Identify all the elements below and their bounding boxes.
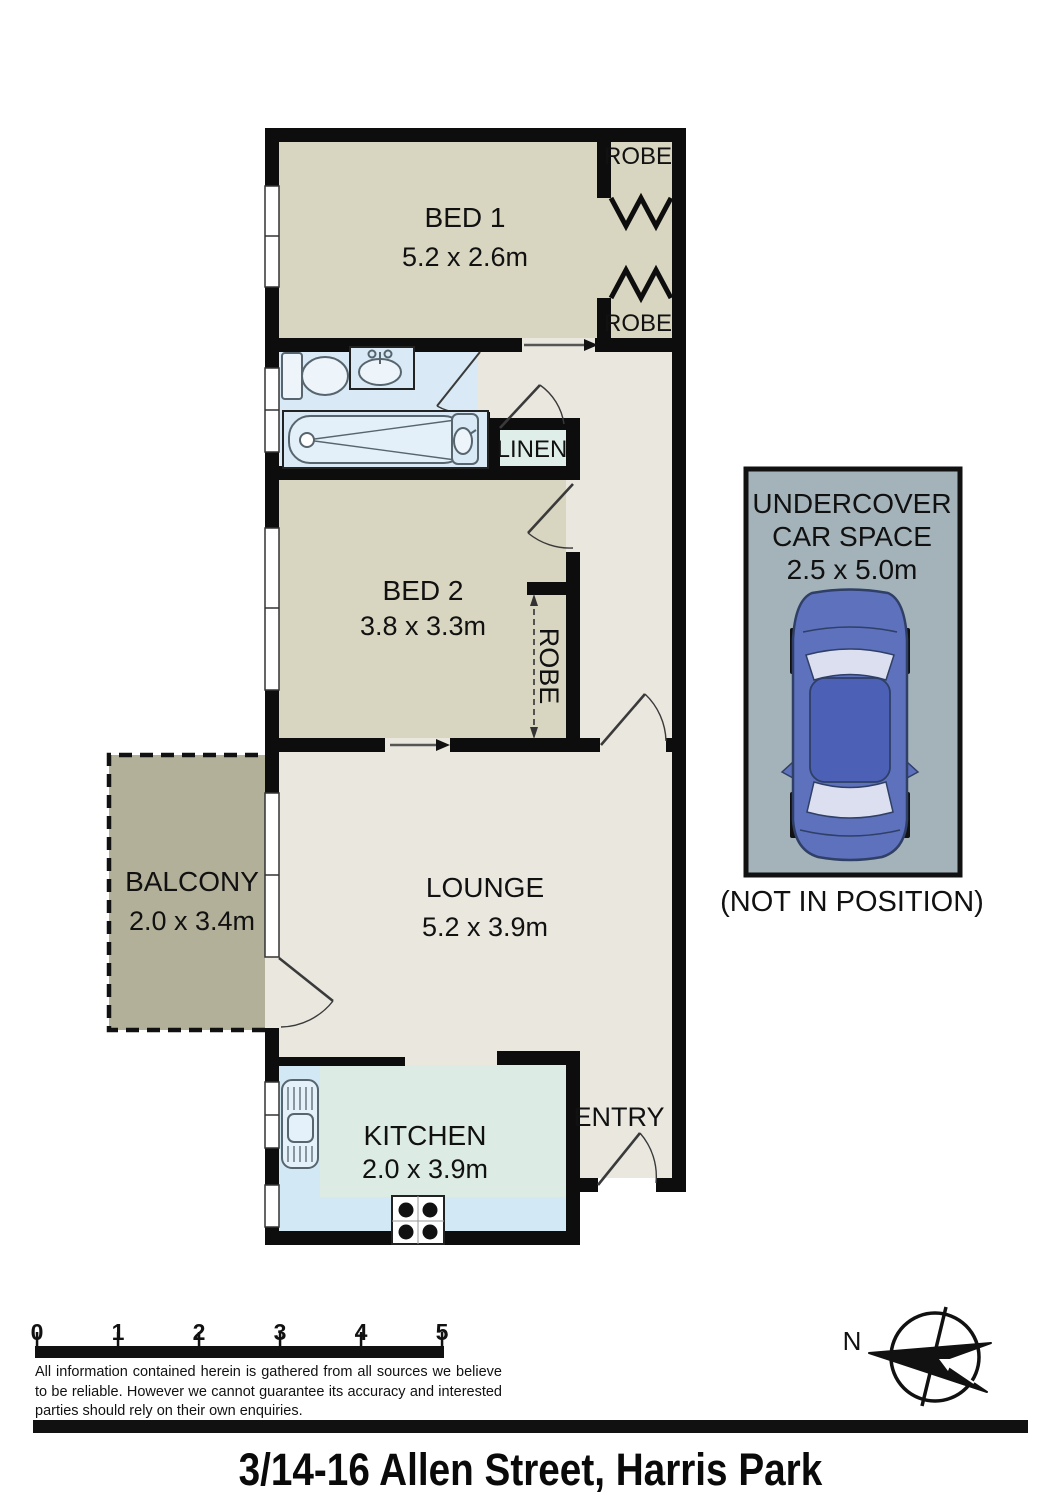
scale-3: 3 [274, 1319, 287, 1345]
floorplan-page: UNDERCOVER CAR SPACE 2.5 x 5.0m (NOT IN … [0, 0, 1061, 1500]
entry-label: ENTRY [573, 1102, 664, 1132]
bed2-window [265, 528, 279, 690]
toilet-icon [282, 353, 348, 399]
balcony-label: BALCONY [125, 866, 259, 897]
room-fills [279, 142, 672, 1231]
bed1-floor [279, 142, 672, 338]
kitchen-sink-icon [282, 1080, 318, 1168]
bed2-label: BED 2 [383, 575, 464, 606]
floorplan-graphic: UNDERCOVER CAR SPACE 2.5 x 5.0m (NOT IN … [0, 0, 1061, 1500]
bed2-dims: 3.8 x 3.3m [360, 611, 486, 641]
lounge-label: LOUNGE [426, 872, 544, 903]
kitchen-window-2 [265, 1185, 279, 1227]
scale-1: 1 [112, 1319, 125, 1345]
kitchen-label: KITCHEN [364, 1120, 487, 1151]
scale-2: 2 [193, 1319, 206, 1345]
linen-label: LINEN [497, 436, 568, 463]
disclaimer-text: All information contained herein is gath… [35, 1363, 502, 1422]
car-space-note: (NOT IN POSITION) [720, 886, 984, 918]
car-space-title-1: UNDERCOVER [752, 488, 951, 519]
car-space-dims: 2.5 x 5.0m [787, 554, 918, 585]
address-title: 3/14-16 Allen Street, Harris Park [74, 1444, 986, 1496]
robe1-label: ROBE [604, 143, 672, 170]
robe2-label: ROBE [604, 310, 672, 337]
bed1-dims: 5.2 x 2.6m [402, 242, 528, 272]
balcony-dims: 2.0 x 3.4m [129, 906, 255, 936]
stove-icon [392, 1196, 444, 1244]
scale-5: 5 [436, 1319, 449, 1345]
bed2-floor [279, 480, 566, 738]
bathroom-sink-icon [350, 347, 414, 389]
car-icon [782, 590, 918, 861]
car-space: UNDERCOVER CAR SPACE 2.5 x 5.0m (NOT IN … [720, 469, 984, 918]
scale-bar: 0 1 2 3 4 5 [31, 1319, 449, 1358]
bed1-label: BED 1 [425, 202, 506, 233]
car-space-title-2: CAR SPACE [772, 521, 932, 552]
vanity-sink-icon [452, 414, 478, 464]
north-arrow-icon: N [843, 1307, 991, 1406]
kitchen-dims: 2.0 x 3.9m [362, 1154, 488, 1184]
robe3-label: ROBE [534, 628, 564, 705]
lounge-dims: 5.2 x 3.9m [422, 912, 548, 942]
scale-4: 4 [355, 1319, 368, 1345]
north-label: N [843, 1326, 862, 1356]
scale-0: 0 [31, 1319, 44, 1345]
